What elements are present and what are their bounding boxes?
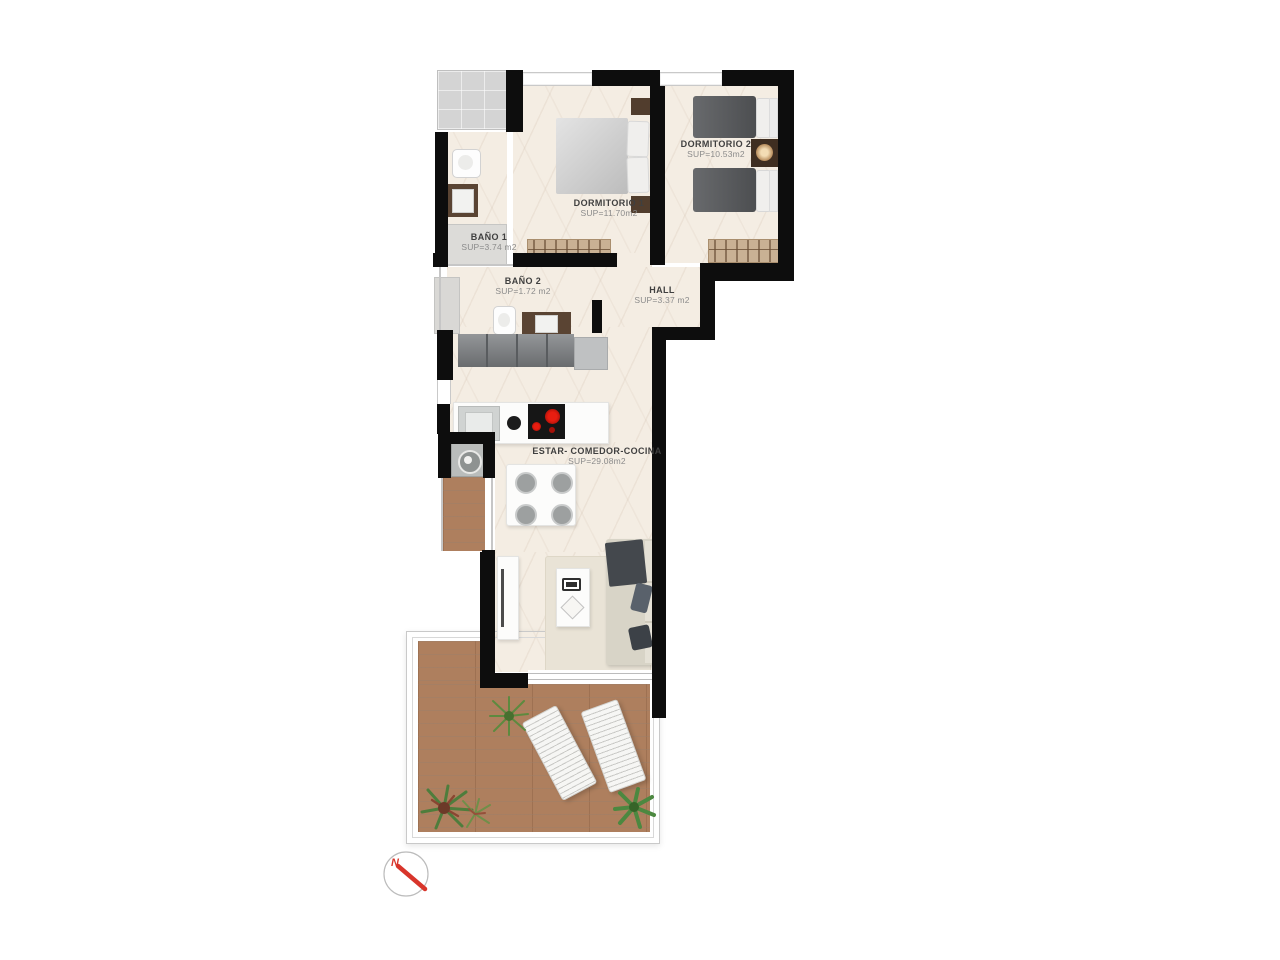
room-area: SUP=29.08m2 [532,456,661,466]
toilet [493,306,516,335]
wardrobe-bedroom-2 [708,239,780,263]
bed-pillow [626,121,649,158]
utility-terrace-strip [443,477,485,551]
dining-chair [515,504,537,526]
wall-bedroom-divider [650,86,665,265]
tray-icon [562,578,581,591]
room-name: BAÑO 2 [505,276,541,286]
room-label-dormitorio-1: DORMITORIO 1 SUP=11.70m2 [574,198,645,218]
entrance-landing [437,70,508,130]
wall [433,253,448,267]
room-label-hall: HALL SUP=3.37 m2 [634,285,689,305]
sofa-throw [605,539,647,587]
wall [592,70,660,86]
sofa [606,539,656,665]
single-bed-bottom [693,168,756,212]
wall [513,253,617,267]
room-name: BAÑO 1 [471,232,507,242]
room-name: HALL [649,285,675,295]
lamp-icon [756,144,773,161]
room-name: ESTAR- COMEDOR-COCINA [532,446,661,456]
utility-glass-line [441,477,443,551]
single-bed-top [693,96,756,138]
mattress-edge [769,98,778,138]
plant-terrace-small [455,795,495,833]
burner-large [545,409,560,424]
vanity-sink [522,312,571,335]
room-area: SUP=11.70m2 [574,208,645,218]
decor-diamond-icon [560,595,584,619]
closet-cabinet-end [574,337,608,370]
nightstand [631,98,652,115]
sliding-glass-door [528,670,652,684]
burner-small [532,422,541,431]
tv-icon [501,569,504,627]
room-label-estar-comedor-cocina: ESTAR- COMEDOR-COCINA SUP=29.08m2 [532,446,661,466]
window-bedroom-1 [523,72,592,86]
wall [435,132,448,265]
floor-plan-canvas: DORMITORIO 1 SUP=11.70m2 DORMITORIO 2 SU… [0,0,1280,960]
room-area: SUP=3.37 m2 [634,295,689,305]
room-name: DORMITORIO 2 [681,139,752,149]
mattress-edge [769,170,778,212]
dining-chair [515,472,537,494]
sofa-pillow [628,624,653,651]
wall-living-left [480,552,495,688]
wall [722,70,794,86]
room-area: SUP=1.72 m2 [495,286,550,296]
cooktop [528,404,565,439]
plant-terrace-bottom-right [610,783,658,831]
room-label-dormitorio-2: DORMITORIO 2 SUP=10.53m2 [681,139,752,159]
wall-laundry-alcove [483,432,495,478]
tv-sideboard [497,556,519,640]
compass-north-label: N [391,857,400,869]
toilet [452,149,481,178]
burner-small [549,427,555,433]
wall [480,673,528,688]
vanity-sink [447,184,478,217]
dining-chair [551,472,573,494]
nightstand-lamp [751,139,778,167]
compass: N [378,846,436,904]
wall [437,404,450,434]
window-bedroom-2 [660,72,722,86]
wall [506,70,523,132]
room-area: SUP=3.74 m2 [461,242,516,252]
shower-tray [434,277,460,334]
coffee-table [556,568,590,627]
room-label-bano-1: BAÑO 1 SUP=3.74 m2 [461,232,516,252]
washing-machine [451,443,485,477]
wall [437,330,453,380]
wall [592,300,602,333]
utility-door-line [491,477,493,551]
faucet-icon [507,416,521,430]
plant-terrace-top [486,693,532,739]
bed-double [556,118,628,194]
wall-laundry-alcove [438,432,451,478]
wall [652,327,715,340]
wall-living-right [652,340,666,718]
wall [778,86,794,264]
bed-pillow [626,157,649,194]
room-label-bano-2: BAÑO 2 SUP=1.72 m2 [495,276,550,296]
room-name: DORMITORIO 1 [574,198,645,208]
closet-cabinets [458,334,574,367]
shower-glass-line [439,267,441,330]
bathroom-divider-line [444,264,514,266]
room-area: SUP=10.53m2 [681,149,752,159]
floor-door-gap-bedroom-1 [617,253,652,267]
dining-chair [551,504,573,526]
window-kitchen [437,380,451,404]
